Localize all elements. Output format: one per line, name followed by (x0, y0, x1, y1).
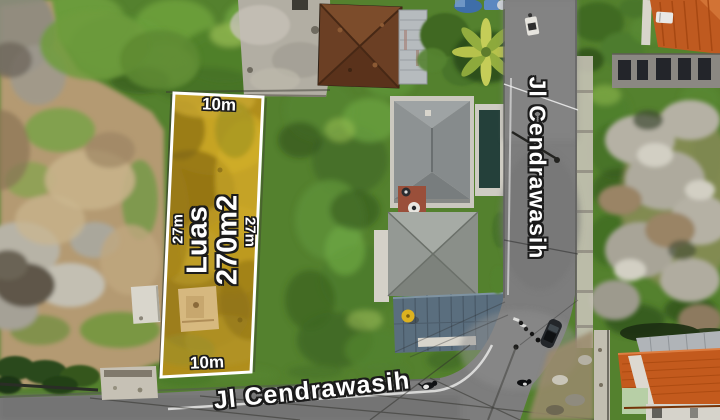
aerial-listing-photo: 10m 10m 27m 27m Luas 270m2 Jl Cendrawasi… (0, 0, 720, 420)
concrete-slab (131, 285, 161, 324)
hip-roof-house-b (374, 212, 478, 302)
sand-patch (178, 286, 219, 332)
pool (475, 104, 504, 196)
driveway (100, 366, 158, 400)
watermark: rumah123 (0, 0, 360, 27)
metal-roof-annex (399, 10, 427, 84)
aerial-terrain (0, 0, 720, 420)
white-vehicle (656, 11, 674, 23)
gray-facade-building (612, 54, 720, 88)
